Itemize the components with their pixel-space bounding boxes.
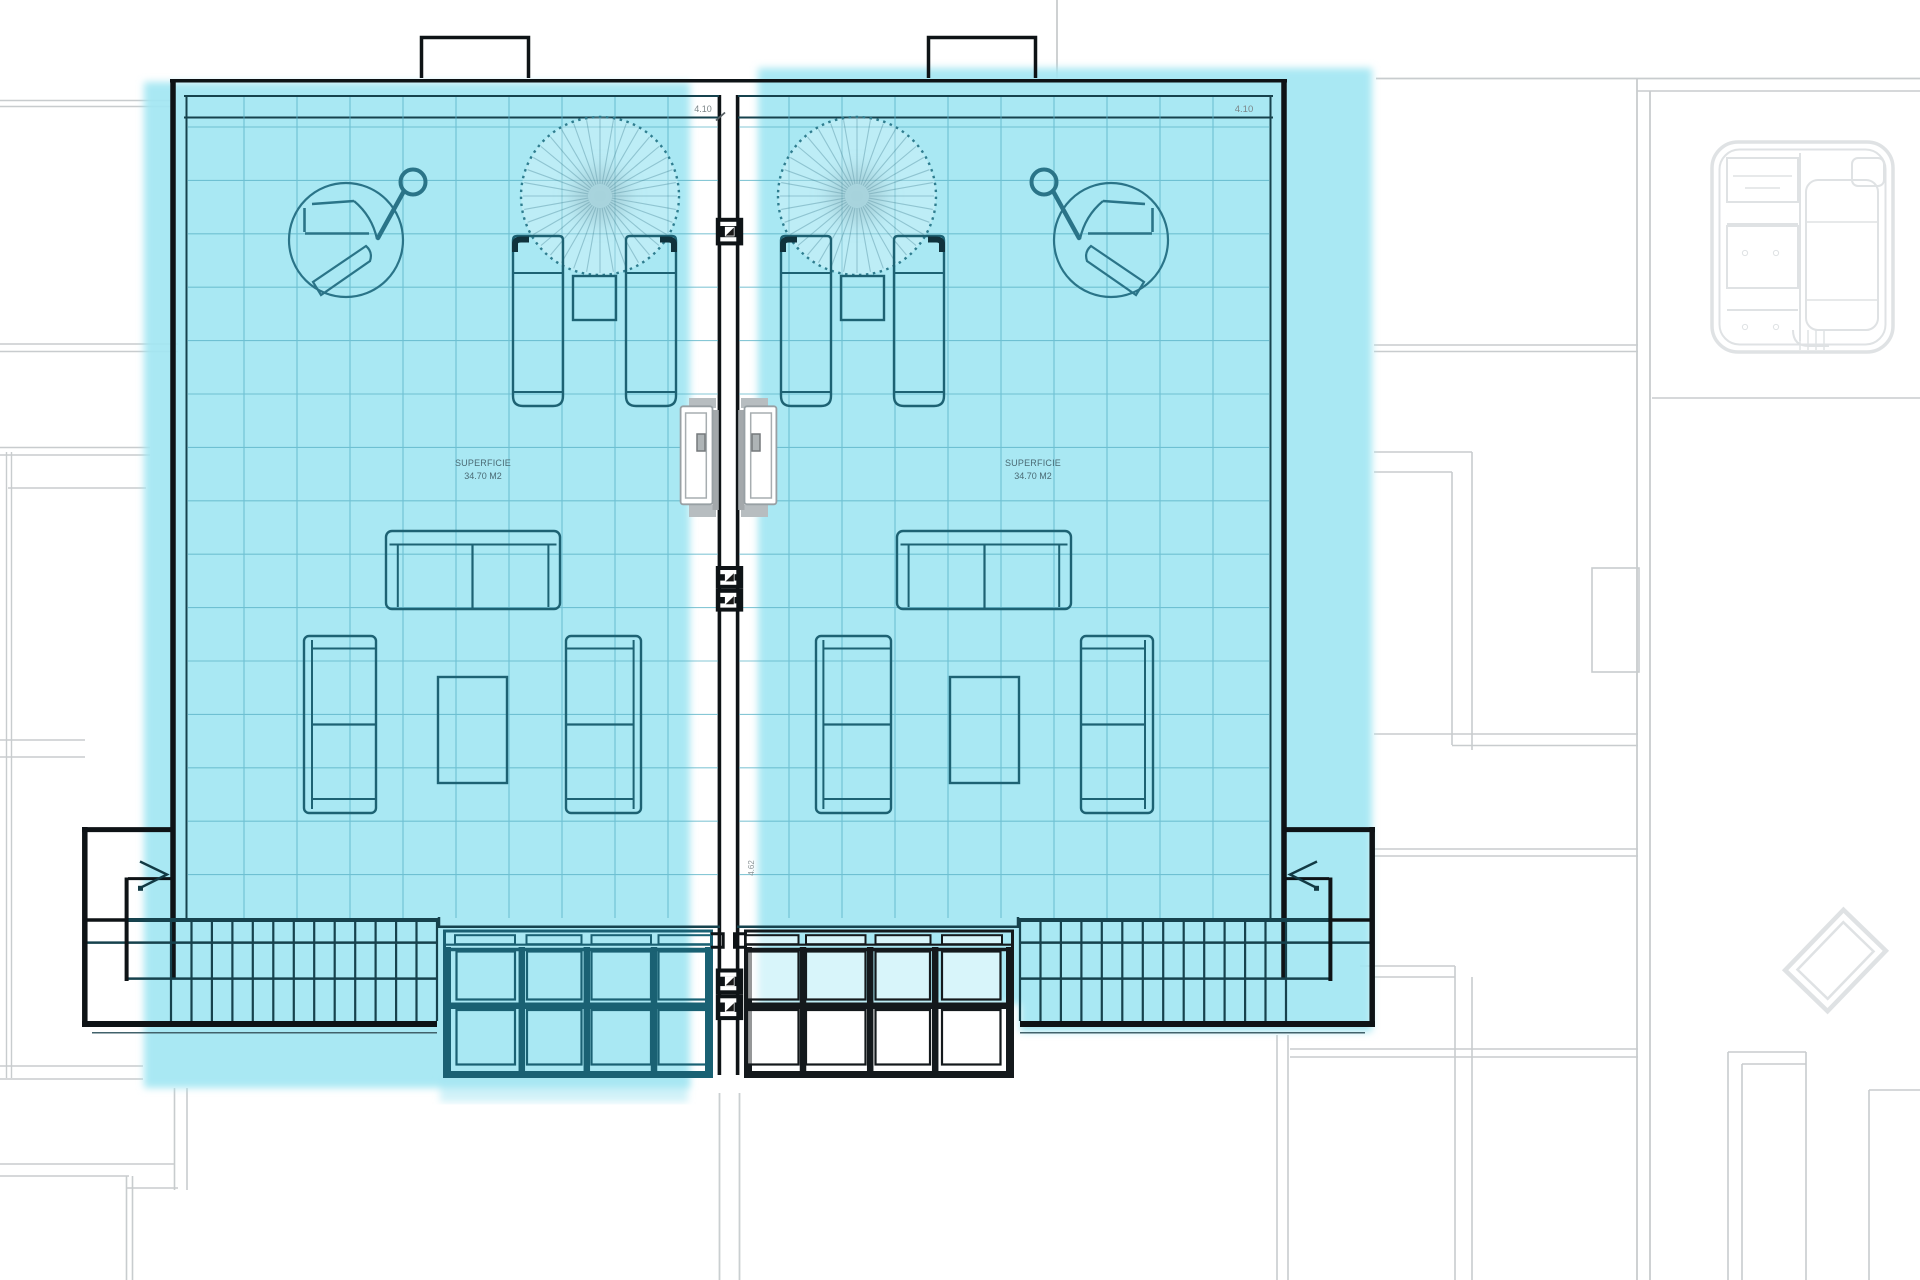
svg-text:4.10: 4.10 xyxy=(694,104,712,114)
svg-text:SUPERFICIE: SUPERFICIE xyxy=(1005,458,1061,468)
svg-text:34.70 M2: 34.70 M2 xyxy=(464,471,502,481)
svg-text:SUPERFICIE: SUPERFICIE xyxy=(455,458,511,468)
svg-text:4.10: 4.10 xyxy=(1235,104,1254,115)
svg-text:34.70 M2: 34.70 M2 xyxy=(1014,471,1052,481)
svg-text:4.62: 4.62 xyxy=(747,860,756,876)
